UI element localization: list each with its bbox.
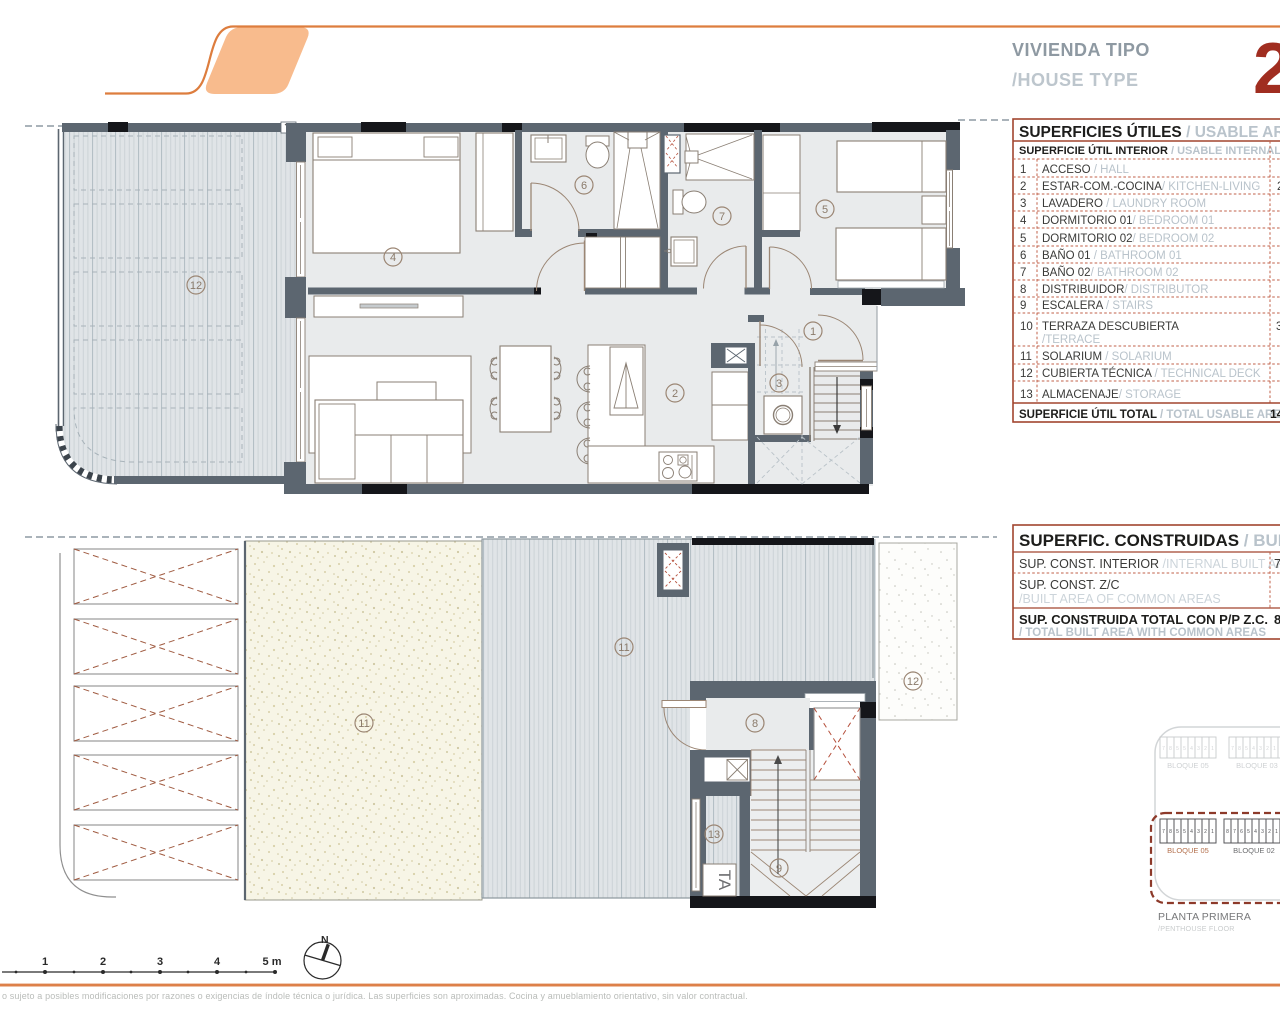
svg-text:SUPERFICIES ÚTILES / USABLE AR: SUPERFICIES ÚTILES / USABLE AREA bbox=[1019, 123, 1280, 141]
svg-text:8: 8 bbox=[1169, 746, 1172, 752]
svg-text:11: 11 bbox=[618, 642, 629, 654]
svg-text:5: 5 bbox=[1176, 829, 1179, 835]
svg-text:4: 4 bbox=[1252, 746, 1255, 752]
svg-text:5: 5 bbox=[1245, 746, 1248, 752]
svg-text:12: 12 bbox=[1020, 368, 1033, 380]
svg-text:/BUILT AREA OF COMMON AREAS: /BUILT AREA OF COMMON AREAS bbox=[1019, 592, 1221, 606]
svg-text:4: 4 bbox=[1020, 215, 1027, 227]
svg-text:/PENTHOUSE FLOOR: /PENTHOUSE FLOOR bbox=[1158, 924, 1235, 933]
svg-text:3: 3 bbox=[1276, 321, 1280, 333]
svg-text:2: 2 bbox=[1204, 829, 1207, 835]
svg-text:DORMITORIO 01/ BEDROOM 01: DORMITORIO 01/ BEDROOM 01 bbox=[1042, 215, 1214, 227]
svg-text:BAÑO 02/ BATHROOM 02: BAÑO 02/ BATHROOM 02 bbox=[1042, 266, 1179, 279]
svg-text:3: 3 bbox=[1259, 746, 1262, 752]
svg-text:TA: TA bbox=[715, 870, 734, 891]
svg-text:PLANTA PRIMERA: PLANTA PRIMERA bbox=[1158, 911, 1251, 923]
svg-text:12: 12 bbox=[907, 676, 919, 688]
svg-text:7: 7 bbox=[1162, 829, 1165, 835]
svg-text:5: 5 bbox=[1183, 829, 1186, 835]
svg-text:2: 2 bbox=[100, 956, 106, 968]
svg-text:2: 2 bbox=[1020, 181, 1026, 193]
svg-text:3: 3 bbox=[1197, 829, 1200, 835]
svg-text:ALMACENAJE/ STORAGE: ALMACENAJE/ STORAGE bbox=[1042, 389, 1181, 401]
svg-text:9: 9 bbox=[1020, 300, 1026, 312]
svg-text:VIVIENDA TIPO: VIVIENDA TIPO bbox=[1012, 40, 1150, 60]
svg-text:DORMITORIO 02/ BEDROOM 02: DORMITORIO 02/ BEDROOM 02 bbox=[1042, 233, 1214, 245]
svg-text:7: 7 bbox=[1274, 557, 1280, 571]
svg-text:1: 1 bbox=[1211, 746, 1214, 752]
svg-text:9: 9 bbox=[776, 863, 782, 875]
svg-text:SUPERFIC. CONSTRUIDAS / BUILT: SUPERFIC. CONSTRUIDAS / BUILT AREA bbox=[1019, 531, 1280, 550]
svg-text:4: 4 bbox=[1190, 746, 1193, 752]
svg-text:o sujeto a posibles modificaci: o sujeto a posibles modificaciones por r… bbox=[2, 991, 748, 1001]
svg-text:8: 8 bbox=[1020, 284, 1026, 296]
svg-text:1: 1 bbox=[42, 956, 48, 968]
svg-text:4: 4 bbox=[390, 252, 396, 264]
svg-text:BLOQUE 02: BLOQUE 02 bbox=[1233, 846, 1275, 855]
svg-text:N: N bbox=[321, 934, 329, 946]
svg-text:1: 1 bbox=[1020, 164, 1026, 176]
svg-text:8: 8 bbox=[752, 718, 758, 730]
svg-text:SUP. CONSTRUIDA TOTAL CON P/P: SUP. CONSTRUIDA TOTAL CON P/P Z.C. bbox=[1019, 612, 1268, 627]
svg-text:2: 2 bbox=[672, 388, 678, 400]
svg-text:1: 1 bbox=[1275, 829, 1278, 835]
svg-text:5: 5 bbox=[1183, 746, 1186, 752]
svg-text:11: 11 bbox=[358, 718, 369, 730]
svg-text:/HOUSE TYPE: /HOUSE TYPE bbox=[1012, 70, 1139, 90]
svg-text:TERRAZA DESCUBIERTA: TERRAZA DESCUBIERTA bbox=[1042, 321, 1179, 333]
svg-text:SOLARIUM / SOLARIUM: SOLARIUM / SOLARIUM bbox=[1042, 351, 1172, 363]
svg-text:DISTRIBUIDOR/ DISTRIBUTOR: DISTRIBUIDOR/ DISTRIBUTOR bbox=[1042, 284, 1209, 296]
svg-text:7: 7 bbox=[719, 211, 725, 223]
svg-text:11: 11 bbox=[1020, 351, 1032, 363]
svg-text:3: 3 bbox=[1197, 746, 1200, 752]
svg-text:4: 4 bbox=[214, 956, 221, 968]
svg-text:LAVADERO / LAUNDRY ROOM: LAVADERO / LAUNDRY ROOM bbox=[1042, 198, 1206, 210]
svg-text:ESTAR-COM.-COCINA/ KITCHEN-LIV: ESTAR-COM.-COCINA/ KITCHEN-LIVING bbox=[1042, 181, 1260, 193]
svg-text:2: 2 bbox=[1268, 829, 1271, 835]
svg-text:5: 5 bbox=[1020, 233, 1026, 245]
svg-text:2: 2 bbox=[1266, 746, 1269, 752]
svg-text:14: 14 bbox=[1270, 407, 1280, 421]
svg-text:10: 10 bbox=[1020, 321, 1033, 333]
svg-text:SUP. CONST. INTERIOR /INTERNAL: SUP. CONST. INTERIOR /INTERNAL BUILT ARE… bbox=[1019, 557, 1280, 571]
svg-text:6: 6 bbox=[1240, 829, 1243, 835]
svg-text:8: 8 bbox=[1238, 746, 1241, 752]
svg-text:1: 1 bbox=[1211, 829, 1214, 835]
svg-text:5: 5 bbox=[1247, 829, 1250, 835]
svg-text:5 m: 5 m bbox=[263, 956, 282, 968]
svg-text:8: 8 bbox=[1274, 612, 1280, 627]
svg-text:1: 1 bbox=[1273, 746, 1276, 752]
svg-text:SUPERFICIE ÚTIL INTERIOR / USA: SUPERFICIE ÚTIL INTERIOR / USABLE INTERN… bbox=[1019, 144, 1280, 157]
svg-text:BLOQUE 05: BLOQUE 05 bbox=[1167, 846, 1209, 855]
svg-text:7: 7 bbox=[1020, 267, 1026, 279]
svg-text:8: 8 bbox=[1226, 829, 1229, 835]
svg-text:3: 3 bbox=[157, 956, 163, 968]
svg-text:ESCALERA / STAIRS: ESCALERA / STAIRS bbox=[1042, 300, 1153, 312]
svg-text:2: 2 bbox=[1253, 29, 1280, 109]
svg-text:3: 3 bbox=[1261, 829, 1264, 835]
svg-text:8: 8 bbox=[1169, 829, 1172, 835]
svg-text:5: 5 bbox=[822, 204, 828, 216]
svg-text:BLOQUE 03: BLOQUE 03 bbox=[1236, 761, 1278, 770]
svg-text:7: 7 bbox=[1162, 746, 1165, 752]
svg-text:1: 1 bbox=[810, 326, 816, 338]
svg-text:13: 13 bbox=[1020, 389, 1033, 401]
svg-text:12: 12 bbox=[190, 280, 202, 292]
svg-text:SUP. CONST. Z/C: SUP. CONST. Z/C bbox=[1019, 578, 1119, 592]
svg-text:7: 7 bbox=[1231, 746, 1234, 752]
svg-text:4: 4 bbox=[1190, 829, 1193, 835]
svg-text:/ TOTAL BUILT AREA WITH COMMON: / TOTAL BUILT AREA WITH COMMON AREAS bbox=[1019, 627, 1266, 639]
svg-text:3: 3 bbox=[1020, 198, 1026, 210]
svg-text:ACCESO / HALL: ACCESO / HALL bbox=[1042, 164, 1130, 176]
svg-text:BLOQUE 05: BLOQUE 05 bbox=[1167, 761, 1209, 770]
svg-text:/TERRACE: /TERRACE bbox=[1042, 334, 1100, 346]
svg-text:BAÑO 01 / BATHROOM 01: BAÑO 01 / BATHROOM 01 bbox=[1042, 249, 1182, 262]
svg-text:CUBIERTA TÉCNICA / TECHNICAL D: CUBIERTA TÉCNICA / TECHNICAL DECK bbox=[1042, 367, 1261, 380]
svg-text:7: 7 bbox=[1233, 829, 1236, 835]
svg-text:4: 4 bbox=[1254, 829, 1257, 835]
svg-text:5: 5 bbox=[1176, 746, 1179, 752]
svg-text:3: 3 bbox=[776, 378, 782, 390]
svg-text:13: 13 bbox=[708, 829, 720, 841]
svg-text:SUPERFICIE ÚTIL TOTAL / TOTAL: SUPERFICIE ÚTIL TOTAL / TOTAL USABLE ARE… bbox=[1019, 408, 1280, 421]
svg-text:6: 6 bbox=[581, 180, 587, 192]
svg-text:6: 6 bbox=[1020, 250, 1026, 262]
svg-text:2: 2 bbox=[1204, 746, 1207, 752]
